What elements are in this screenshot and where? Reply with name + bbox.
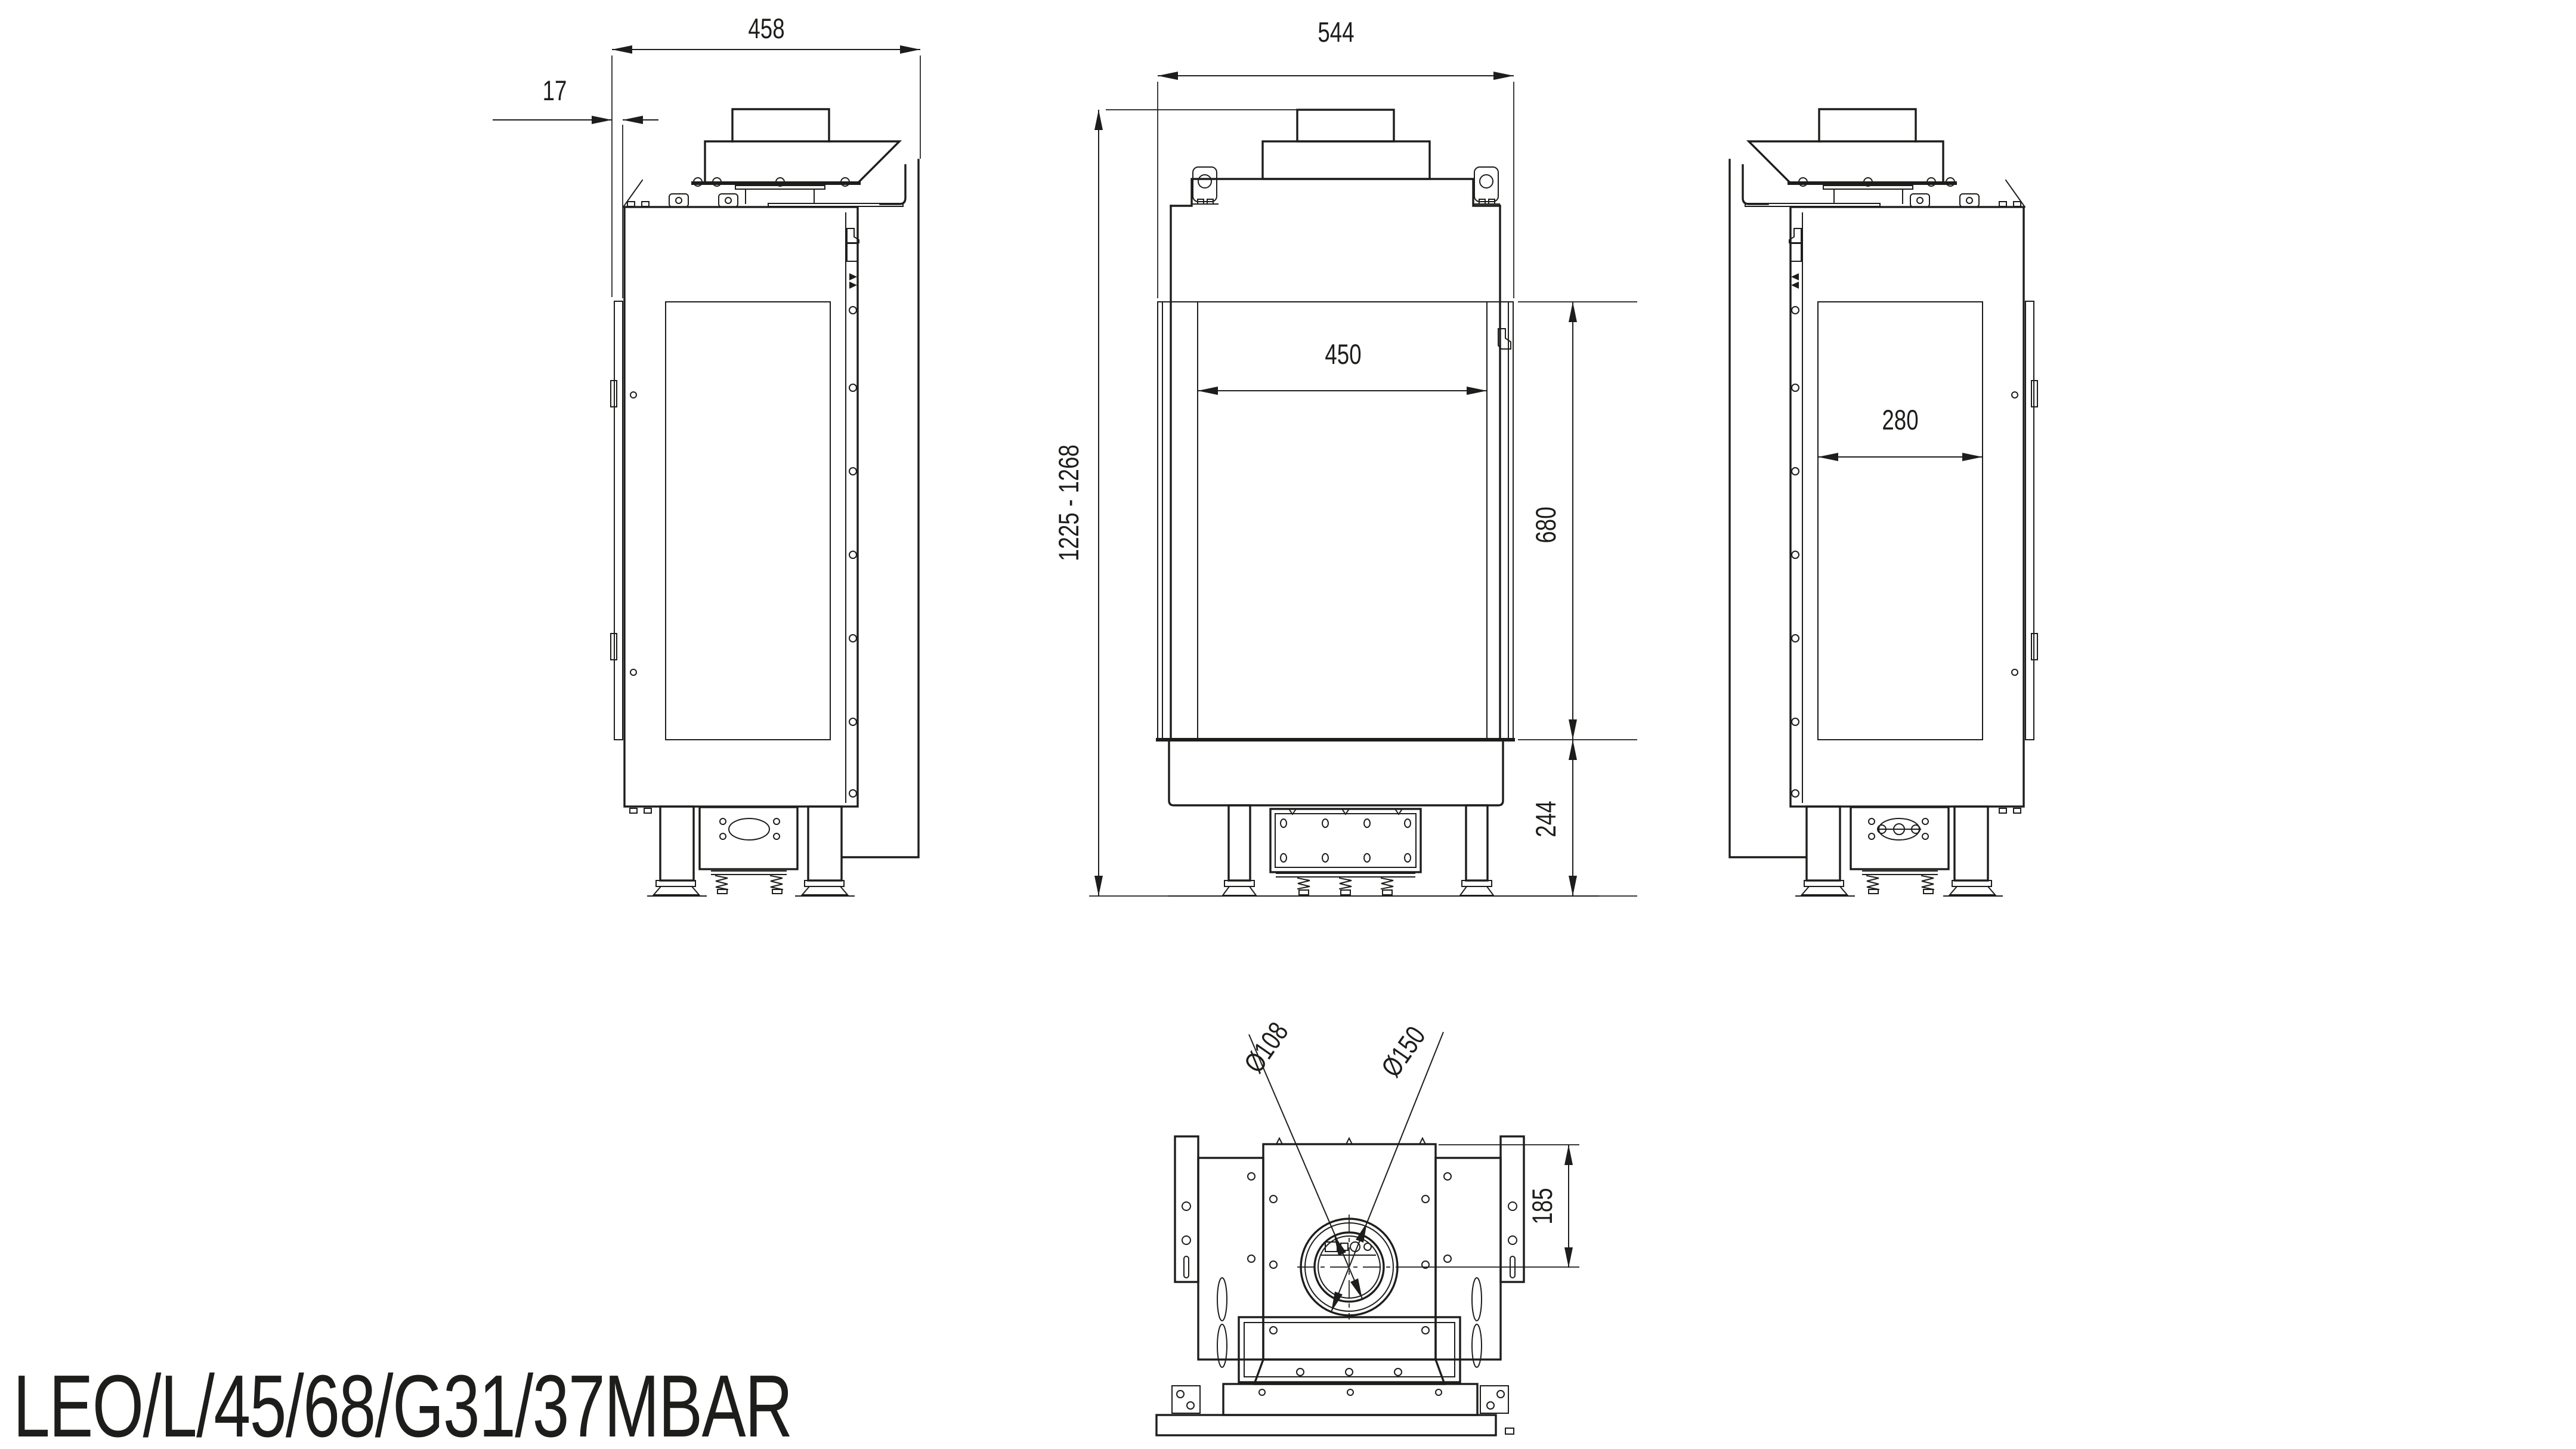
front-view-control-box bbox=[1270, 809, 1421, 895]
left-side-view: 458 17 bbox=[493, 13, 920, 896]
dim-450-label: 450 bbox=[1325, 339, 1361, 370]
drawing-sheet: 458 17 bbox=[0, 0, 2576, 1449]
dim-458: 458 bbox=[612, 13, 920, 297]
front-view-legs bbox=[1223, 805, 1493, 895]
front-mounting-brackets bbox=[1192, 167, 1499, 204]
left-view-control-box bbox=[700, 807, 797, 894]
dim-244-label: 244 bbox=[1530, 801, 1561, 837]
product-code-title: LEO/L/45/68/G31/37MBAR bbox=[13, 1357, 792, 1449]
dim-544: 544 bbox=[1158, 17, 1514, 298]
dim-280: 280 bbox=[1818, 404, 1983, 461]
dim-185-label: 185 bbox=[1527, 1188, 1558, 1224]
right-side-view: 280 bbox=[1730, 109, 2037, 896]
dim-height-range-label: 1225 - 1268 bbox=[1053, 444, 1084, 561]
dim-244: 244 bbox=[1530, 740, 1637, 896]
dim-185: 185 bbox=[1401, 1145, 1579, 1268]
dim-17: 17 bbox=[493, 75, 658, 298]
dim-544-label: 544 bbox=[1318, 17, 1354, 48]
left-view-legs bbox=[630, 807, 854, 896]
dim-450: 450 bbox=[1198, 339, 1487, 395]
dim-280-label: 280 bbox=[1882, 404, 1918, 435]
front-view: 544 450 680 244 bbox=[1053, 17, 1637, 896]
dim-680: 680 bbox=[1518, 302, 1637, 740]
dim-108-label: Ø108 bbox=[1238, 1017, 1294, 1078]
dim-17-label: 17 bbox=[543, 75, 567, 106]
dim-458-label: 458 bbox=[748, 13, 784, 44]
dim-height-range: 1225 - 1268 bbox=[1053, 110, 1297, 896]
dim-150-label: Ø150 bbox=[1375, 1021, 1431, 1082]
top-view: Ø108 Ø150 185 bbox=[1156, 1017, 1579, 1435]
right-view-control-box bbox=[1851, 807, 1949, 894]
dim-680-label: 680 bbox=[1530, 506, 1561, 543]
technical-drawing-canvas: 458 17 bbox=[0, 0, 2576, 1449]
